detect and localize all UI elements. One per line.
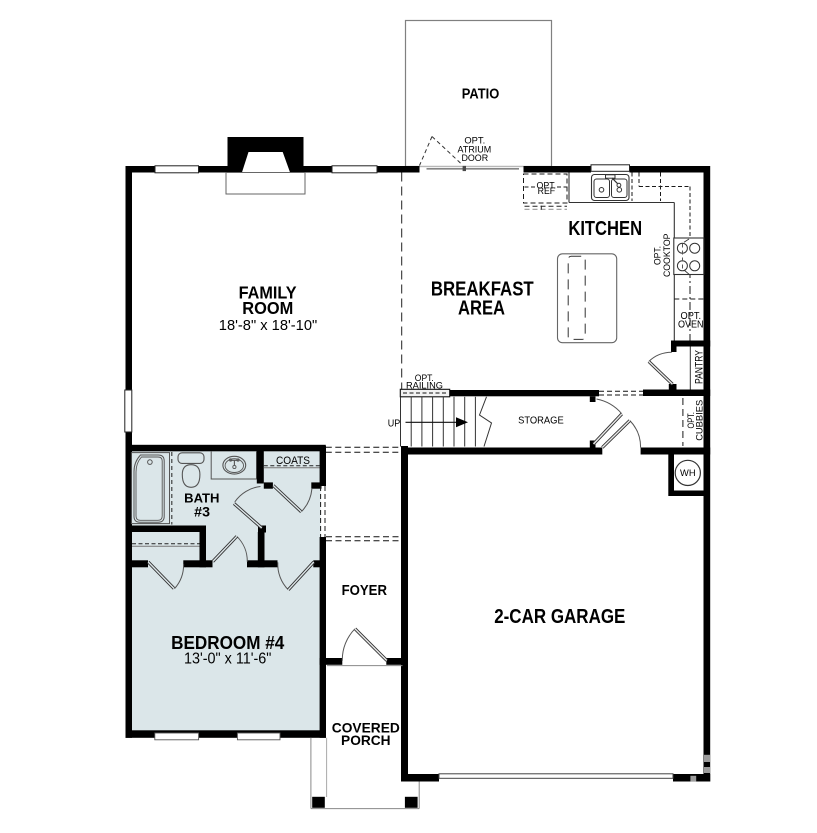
svg-text:REF: REF [538,186,556,196]
svg-text:PANTRY: PANTRY [693,349,705,384]
svg-text:STORAGE: STORAGE [518,415,564,426]
svg-text:13'-0" x 11'-6": 13'-0" x 11'-6" [184,651,271,668]
svg-text:PATIO: PATIO [462,87,500,103]
svg-text:18'-8" x 18'-10": 18'-8" x 18'-10" [219,317,317,334]
svg-text:ROOM: ROOM [242,298,293,318]
svg-text:COATS: COATS [276,455,310,467]
svg-text:DOOR: DOOR [461,153,488,164]
svg-text:#3: #3 [194,505,210,520]
svg-text:COOKTOP: COOKTOP [661,234,672,277]
svg-text:2-CAR GARAGE: 2-CAR GARAGE [494,605,625,628]
svg-text:AREA: AREA [458,298,505,320]
svg-text:BATH: BATH [184,491,219,506]
svg-text:PORCH: PORCH [341,732,391,748]
svg-text:UP: UP [388,418,401,429]
svg-text:WH: WH [680,467,696,478]
svg-text:FOYER: FOYER [342,583,388,599]
svg-text:KITCHEN: KITCHEN [568,217,642,240]
svg-text:OVEN: OVEN [678,320,704,331]
svg-text:CUBBIES: CUBBIES [694,400,705,441]
